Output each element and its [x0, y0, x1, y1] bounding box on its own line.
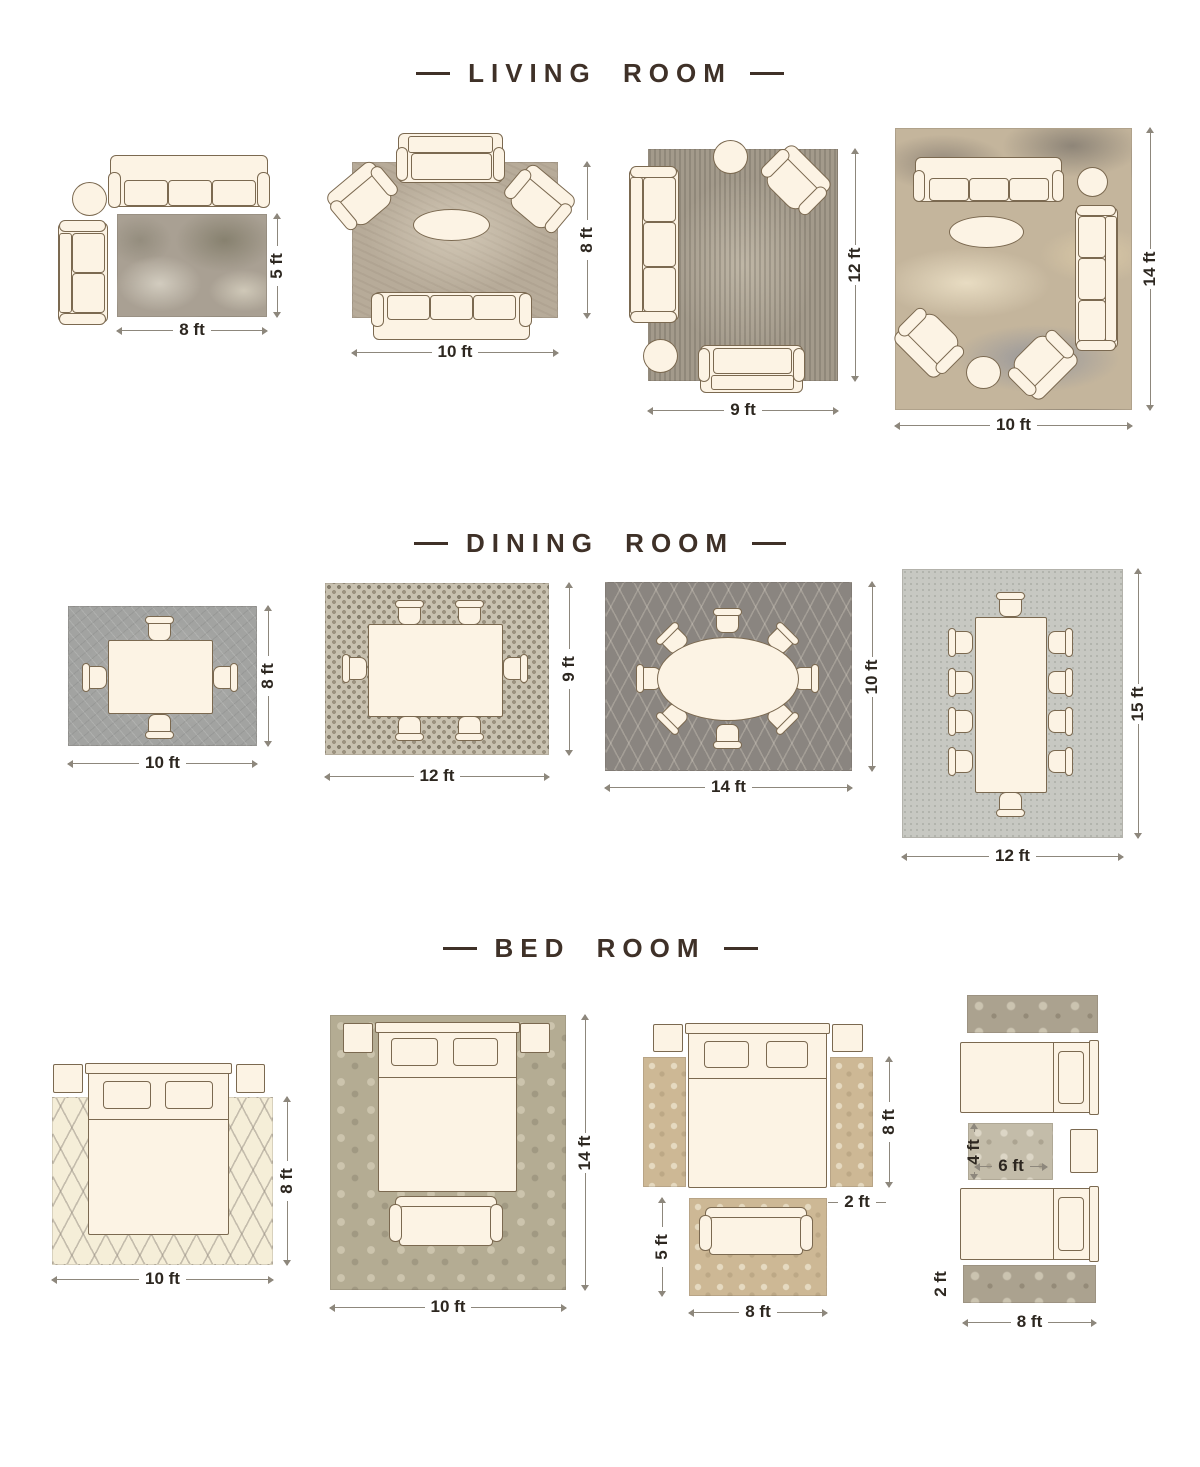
chair-seat: [398, 606, 421, 625]
sofa-arm: [59, 220, 106, 232]
rug-height-dimension: 9 ft: [557, 583, 581, 755]
nightstand: [236, 1064, 265, 1093]
seat-cushion: [1078, 216, 1106, 258]
headboard: [1089, 1186, 1099, 1262]
chair-back: [342, 654, 350, 683]
chair-back: [1065, 628, 1073, 657]
dining-chair: [1048, 669, 1073, 696]
sofa-back: [630, 177, 643, 314]
chair-back: [996, 809, 1025, 817]
nightstand: [1070, 1129, 1098, 1173]
rug-height-dimension: 8 ft: [256, 606, 280, 746]
sofa-arm: [793, 348, 805, 382]
chair-seat: [954, 671, 973, 694]
rug-width-dimension: 12 ft: [325, 766, 549, 786]
bench-seat: [399, 1206, 493, 1246]
chair-seat: [954, 750, 973, 773]
side-table: [713, 140, 748, 174]
bed: [688, 1024, 827, 1188]
rug-size-guide: LIVING ROOM 8 ft 5 ft: [0, 0, 1200, 1467]
bed: [960, 1188, 1098, 1260]
chair-seat: [999, 598, 1022, 617]
section-title-living-room: LIVING ROOM: [0, 58, 1200, 89]
runner-rug: [963, 1265, 1096, 1303]
section-title-text: DINING ROOM: [466, 528, 734, 559]
section-title-dining-room: DINING ROOM: [0, 528, 1200, 559]
title-dash: [416, 72, 450, 75]
dim-label: 12 ft: [989, 846, 1036, 866]
runner-rug: [830, 1057, 873, 1187]
sofa-arm: [630, 166, 677, 178]
seat-cushion: [168, 180, 212, 206]
chair-seat: [148, 622, 171, 641]
chair-back: [82, 663, 90, 692]
blanket-edge: [689, 1078, 826, 1079]
chair-back: [948, 668, 956, 697]
section-title-text: BED ROOM: [495, 933, 706, 964]
dim-label: 8 ft: [275, 1161, 299, 1201]
sofa: [1075, 207, 1118, 349]
seat-cushion: [929, 178, 969, 201]
dim-label: 8 ft: [173, 320, 211, 340]
dim-label: 14 ft: [1138, 249, 1162, 289]
dim-label: 10 ft: [425, 1297, 472, 1317]
seat-cushion: [1009, 178, 1049, 201]
pillow: [391, 1038, 438, 1066]
bench-arm: [699, 1215, 712, 1251]
seat-cushion: [387, 295, 430, 320]
dim-label: 10 ft: [860, 657, 884, 697]
loveseat: [700, 345, 803, 393]
blanket-edge: [1053, 1043, 1054, 1112]
bench-arm: [800, 1215, 813, 1251]
seat-cushion: [411, 153, 492, 180]
sofa-arm: [630, 311, 677, 323]
section-title-bed-room: BED ROOM: [0, 933, 1200, 964]
seat-cushion: [473, 295, 516, 320]
seat-cushion: [124, 180, 168, 206]
seat-cushion: [212, 180, 256, 206]
dim-label: 10 ft: [990, 415, 1037, 435]
dim-label: 15 ft: [1126, 684, 1150, 724]
dining-chair: [146, 616, 173, 641]
bench-arm: [389, 1204, 402, 1242]
seat-cushion: [643, 222, 676, 267]
headboard: [685, 1023, 830, 1034]
seat-cushion: [713, 348, 792, 374]
rug-height-dimension: 14 ft: [1138, 128, 1162, 410]
seat-cushion: [72, 233, 105, 273]
rug-width-dimension: 10 ft: [68, 753, 257, 773]
dining-chair: [948, 708, 973, 735]
rug-height-dimension: 8 ft: [275, 1097, 299, 1265]
sofa-back: [1105, 216, 1117, 342]
dining-chair: [456, 600, 483, 625]
sofa: [915, 157, 1062, 202]
chair-back: [145, 731, 174, 739]
sofa-arm: [108, 172, 121, 208]
dining-chair: [396, 716, 423, 741]
dining-chair: [396, 600, 423, 625]
chair-back: [520, 654, 528, 683]
title-dash: [414, 542, 448, 545]
rug-width-dimension: 10 ft: [330, 1297, 566, 1317]
title-dash: [724, 947, 758, 950]
dim-label: 8 ft: [1011, 1312, 1049, 1332]
nightstand: [520, 1023, 550, 1053]
pillow: [766, 1041, 808, 1068]
dining-table: [368, 624, 503, 717]
dim-label: 6 ft: [992, 1156, 1030, 1176]
chair-back: [948, 628, 956, 657]
rug-width-dimension: 8 ft: [689, 1302, 827, 1322]
chair-back: [996, 592, 1025, 600]
dining-chair: [1048, 629, 1073, 656]
dim-label: 8 ft: [575, 220, 599, 260]
sofa-back: [408, 136, 493, 153]
rug-width-dimension: 8 ft: [117, 320, 267, 340]
chair-back: [455, 600, 484, 608]
loveseat: [398, 133, 503, 183]
rug-height-dimension: 10 ft: [860, 582, 884, 771]
dim-label: 12 ft: [843, 245, 867, 285]
chair-back: [948, 707, 956, 736]
rug-width-dimension: 12 ft: [902, 846, 1123, 866]
nightstand: [343, 1023, 373, 1053]
rug-width-dimension: 10 ft: [52, 1269, 273, 1289]
sofa-back: [59, 233, 72, 313]
dim-label: 8 ft: [256, 656, 280, 696]
chair-back: [455, 733, 484, 741]
sofa: [110, 155, 268, 207]
dining-chair: [997, 592, 1024, 617]
seat-cushion: [643, 267, 676, 312]
center-rug-width-dimension: 6 ft: [975, 1156, 1047, 1176]
chair-back: [1065, 668, 1073, 697]
seat-cushion: [643, 177, 676, 222]
chair-seat: [348, 657, 367, 680]
nightstand: [832, 1024, 863, 1052]
nightstand: [53, 1064, 83, 1093]
bed: [960, 1042, 1098, 1113]
coffee-table: [413, 209, 490, 241]
side-table: [966, 356, 1001, 389]
pillow: [704, 1041, 749, 1068]
side-table: [72, 182, 107, 216]
bed: [88, 1064, 229, 1235]
pillow: [103, 1081, 151, 1109]
chair-back: [230, 663, 238, 692]
chair-back: [713, 608, 742, 616]
bed: [378, 1023, 517, 1192]
dining-chair: [714, 608, 741, 633]
sofa-arm: [519, 293, 532, 327]
sofa-arm: [396, 147, 408, 181]
chair-back: [145, 616, 174, 624]
dining-chair: [146, 714, 173, 739]
headboard: [85, 1063, 232, 1074]
runner-rug: [643, 1057, 686, 1187]
chair-seat: [458, 606, 481, 625]
chair-back: [395, 600, 424, 608]
bench-seat: [709, 1217, 803, 1255]
dining-chair: [714, 724, 741, 749]
rug-width-dimension: 10 ft: [895, 415, 1132, 435]
chair-back: [811, 664, 819, 693]
section-title-text: LIVING ROOM: [468, 58, 732, 89]
dining-table: [975, 617, 1047, 793]
dim-label: 5 ft: [650, 1227, 674, 1267]
dim-label: 8 ft: [739, 1302, 777, 1322]
pillow: [1058, 1051, 1084, 1104]
title-dash: [750, 72, 784, 75]
dim-label: 14 ft: [705, 777, 752, 797]
blanket-edge: [1053, 1189, 1054, 1259]
dining-chair: [503, 655, 528, 682]
dim-label: 9 ft: [557, 649, 581, 689]
seat-cushion: [969, 178, 1009, 201]
runner-height-dimension: 8 ft: [877, 1057, 901, 1187]
runner-height-dimension: 2 ft: [929, 1264, 953, 1304]
dim-label: 8 ft: [877, 1102, 901, 1142]
dining-chair: [456, 716, 483, 741]
seat-cushion: [1078, 300, 1106, 342]
rug-width-dimension: 14 ft: [605, 777, 852, 797]
rug-width-dimension: 9 ft: [648, 400, 838, 420]
dining-table: [657, 637, 799, 721]
sofa-arm: [1052, 170, 1064, 202]
dining-table: [108, 640, 213, 714]
sofa-arm: [698, 348, 710, 382]
rug-height-dimension: 15 ft: [1126, 569, 1150, 838]
dining-chair: [1048, 708, 1073, 735]
chair-back: [713, 741, 742, 749]
rug-height-dimension: 14 ft: [573, 1015, 597, 1290]
seat-cushion: [72, 273, 105, 313]
dining-chair: [342, 655, 367, 682]
pillow: [165, 1081, 213, 1109]
dim-label: 10 ft: [139, 753, 186, 773]
rug-height-dimension: 5 ft: [650, 1198, 674, 1296]
chair-back: [948, 747, 956, 776]
sofa-arm: [1076, 340, 1116, 351]
dining-chair: [997, 792, 1024, 817]
rug: [117, 214, 267, 317]
rug-height-dimension: 5 ft: [265, 214, 289, 317]
runner-width-dimension: 2 ft: [828, 1192, 886, 1212]
coffee-table: [949, 216, 1024, 248]
dining-chair: [948, 748, 973, 775]
dining-chair: [82, 664, 107, 691]
sofa-arm: [913, 170, 925, 202]
rug-height-dimension: 12 ft: [843, 149, 867, 381]
chair-back: [636, 664, 644, 693]
loveseat: [58, 222, 108, 323]
chair-back: [395, 733, 424, 741]
rug-height-dimension: 8 ft: [575, 162, 599, 318]
sofa-arm: [1076, 205, 1116, 216]
runner-width-dimension: 8 ft: [963, 1312, 1096, 1332]
bench-arm: [490, 1204, 503, 1242]
dim-label: 12 ft: [414, 766, 461, 786]
dining-chair: [948, 669, 973, 696]
chair-back: [1065, 747, 1073, 776]
seat-cushion: [430, 295, 473, 320]
sofa-arm: [59, 313, 106, 325]
chair-back: [1065, 707, 1073, 736]
side-table: [643, 339, 678, 373]
dim-label: 10 ft: [139, 1269, 186, 1289]
chair-seat: [88, 666, 107, 689]
title-dash: [443, 947, 477, 950]
title-dash: [752, 542, 786, 545]
dim-label: 5 ft: [265, 246, 289, 286]
runner-rug: [967, 995, 1098, 1033]
dim-label: 14 ft: [573, 1133, 597, 1173]
side-table: [1077, 167, 1108, 197]
sofa-back: [711, 375, 794, 390]
dining-chair: [213, 664, 238, 691]
headboard: [375, 1022, 520, 1033]
chair-seat: [954, 710, 973, 733]
seat-cushion: [1078, 258, 1106, 300]
chair-seat: [954, 631, 973, 654]
chair-seat: [716, 614, 739, 633]
dim-label: 10 ft: [432, 342, 479, 362]
rug-width-dimension: 10 ft: [352, 342, 558, 362]
sofa: [373, 292, 530, 340]
headboard: [1089, 1040, 1099, 1115]
dim-label: 2 ft: [838, 1192, 876, 1212]
blanket-edge: [89, 1119, 228, 1120]
dim-label: 9 ft: [724, 400, 762, 420]
sofa-arm: [493, 147, 505, 181]
sofa: [629, 168, 679, 321]
pillow: [453, 1038, 498, 1066]
sofa-arm: [257, 172, 270, 208]
dining-chair: [1048, 748, 1073, 775]
nightstand: [653, 1024, 683, 1052]
pillow: [1058, 1197, 1084, 1251]
dining-chair: [948, 629, 973, 656]
blanket-edge: [379, 1077, 516, 1078]
dim-label: 2 ft: [929, 1264, 953, 1304]
sofa-arm: [371, 293, 384, 327]
